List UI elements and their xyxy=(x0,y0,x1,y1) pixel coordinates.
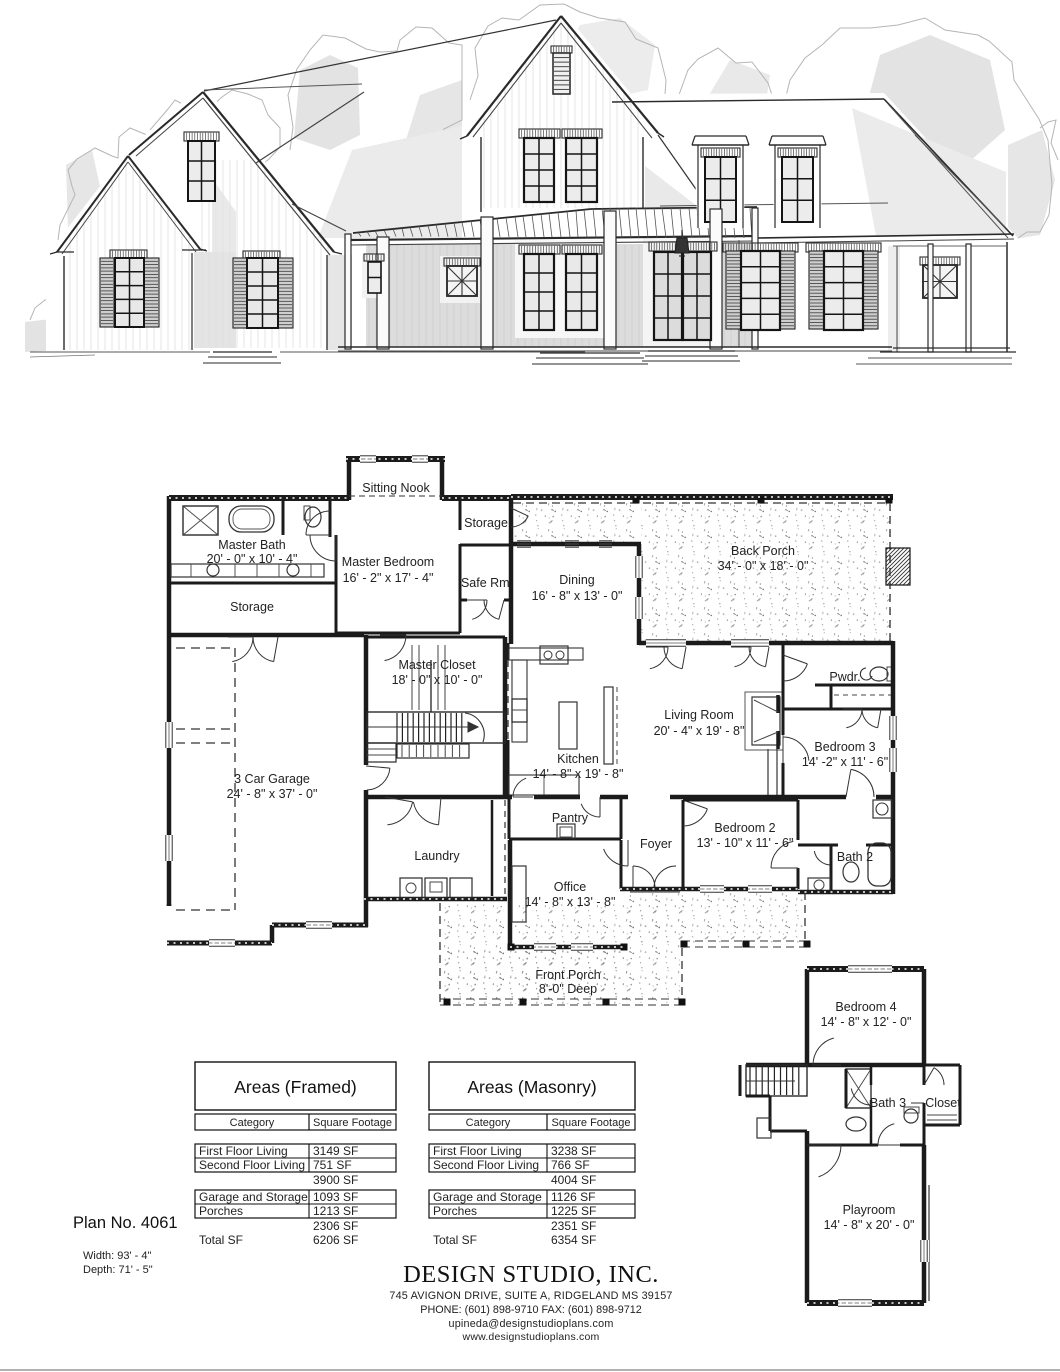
svg-text:Areas (Framed): Areas (Framed) xyxy=(234,1077,357,1097)
svg-text:766 SF: 766 SF xyxy=(551,1158,590,1172)
svg-text:1126 SF: 1126 SF xyxy=(551,1190,595,1204)
svg-text:Plan No. 4061: Plan No. 4061 xyxy=(73,1214,178,1232)
svg-text:Category: Category xyxy=(466,1117,511,1129)
svg-text:14' -2" x 11' - 6": 14' -2" x 11' - 6" xyxy=(802,755,888,769)
svg-text:Total SF: Total SF xyxy=(433,1233,477,1247)
svg-text:www.designstudioplans.com: www.designstudioplans.com xyxy=(462,1331,600,1343)
svg-text:4004 SF: 4004 SF xyxy=(551,1173,596,1187)
svg-text:Foyer: Foyer xyxy=(640,837,672,851)
svg-text:Closet: Closet xyxy=(925,1096,961,1110)
svg-text:20' - 0" x 10' - 4": 20' - 0" x 10' - 4" xyxy=(207,552,298,566)
svg-text:18' - 0" x 10' - 0": 18' - 0" x 10' - 0" xyxy=(392,673,483,687)
svg-text:13' - 10" x 11' - 6": 13' - 10" x 11' - 6" xyxy=(697,836,794,850)
svg-text:24' - 8" x 37' - 0": 24' - 8" x 37' - 0" xyxy=(227,787,318,801)
svg-text:Safe Rm.: Safe Rm. xyxy=(461,576,513,590)
svg-text:upineda@designstudioplans.com: upineda@designstudioplans.com xyxy=(448,1318,613,1330)
svg-text:6354 SF: 6354 SF xyxy=(551,1233,596,1247)
svg-text:3 Car Garage: 3 Car Garage xyxy=(234,772,310,786)
svg-text:1225 SF: 1225 SF xyxy=(551,1204,596,1218)
svg-text:Bedroom 4: Bedroom 4 xyxy=(835,1000,896,1014)
svg-text:745 AVIGNON DRIVE, SUITE A, RI: 745 AVIGNON DRIVE, SUITE A, RIDGELAND MS… xyxy=(389,1290,672,1302)
svg-text:Bath 2: Bath 2 xyxy=(837,850,873,864)
svg-text:Porches: Porches xyxy=(199,1204,243,1218)
svg-text:Laundry: Laundry xyxy=(414,849,460,863)
svg-text:Storage: Storage xyxy=(230,600,274,614)
svg-text:DESIGN STUDIO, INC.: DESIGN STUDIO, INC. xyxy=(403,1261,659,1288)
svg-text:Garage and Storage: Garage and Storage xyxy=(433,1190,542,1204)
svg-text:3149 SF: 3149 SF xyxy=(313,1144,358,1158)
svg-text:14' - 8" x 13' - 8": 14' - 8" x 13' - 8" xyxy=(525,895,616,909)
svg-text:16' - 2" x 17' - 4": 16' - 2" x 17' - 4" xyxy=(343,571,434,585)
svg-text:Master Closet: Master Closet xyxy=(398,658,476,672)
svg-text:3900 SF: 3900 SF xyxy=(313,1173,358,1187)
svg-text:Pantry: Pantry xyxy=(552,811,589,825)
svg-text:Kitchen: Kitchen xyxy=(557,752,599,766)
svg-text:751 SF: 751 SF xyxy=(313,1158,352,1172)
svg-text:Bedroom 3: Bedroom 3 xyxy=(814,740,875,754)
svg-text:Total SF: Total SF xyxy=(199,1233,243,1247)
svg-text:Storage: Storage xyxy=(464,516,508,530)
svg-text:Master Bedroom: Master Bedroom xyxy=(342,555,434,569)
svg-text:Office: Office xyxy=(554,880,586,894)
svg-text:14' - 8" x 20' - 0": 14' - 8" x 20' - 0" xyxy=(824,1218,915,1232)
svg-text:1213 SF: 1213 SF xyxy=(313,1204,358,1218)
svg-text:Back Porch: Back Porch xyxy=(731,544,795,558)
svg-text:20' - 4" x 19' - 8": 20' - 4" x 19' - 8" xyxy=(654,724,745,738)
svg-text:14' - 8" x 12' - 0": 14' - 8" x 12' - 0" xyxy=(821,1015,912,1029)
svg-text:1093 SF: 1093 SF xyxy=(313,1190,358,1204)
svg-text:Dining: Dining xyxy=(559,573,594,587)
svg-text:Second Floor Living: Second Floor Living xyxy=(433,1158,539,1172)
svg-text:8'-0" Deep: 8'-0" Deep xyxy=(539,982,597,996)
svg-text:First Floor Living: First Floor Living xyxy=(433,1144,522,1158)
svg-text:3238 SF: 3238 SF xyxy=(551,1144,596,1158)
svg-text:2351 SF: 2351 SF xyxy=(551,1219,596,1233)
svg-text:First Floor Living: First Floor Living xyxy=(199,1144,288,1158)
svg-text:2306 SF: 2306 SF xyxy=(313,1219,358,1233)
svg-text:Width: 93' - 4": Width: 93' - 4" xyxy=(83,1250,151,1262)
svg-text:Bedroom 2: Bedroom 2 xyxy=(714,821,775,835)
svg-text:Master Bath: Master Bath xyxy=(218,538,285,552)
svg-text:Playroom: Playroom xyxy=(843,1203,896,1217)
svg-text:Second Floor Living: Second Floor Living xyxy=(199,1158,305,1172)
svg-text:PHONE: (601) 898-9710 FAX: (6: PHONE: (601) 898-9710 FAX: (601) 898-971… xyxy=(420,1304,641,1316)
svg-text:Pwdr.: Pwdr. xyxy=(829,670,860,684)
svg-text:Square Footage: Square Footage xyxy=(313,1117,392,1129)
svg-text:Category: Category xyxy=(230,1117,275,1129)
svg-text:Living Room: Living Room xyxy=(664,708,733,722)
svg-text:Depth: 71' - 5": Depth: 71' - 5" xyxy=(83,1264,153,1276)
svg-text:Bath 3: Bath 3 xyxy=(870,1096,906,1110)
svg-text:34' - 0" x 18' - 0": 34' - 0" x 18' - 0" xyxy=(718,559,809,573)
svg-text:Sitting Nook: Sitting Nook xyxy=(362,481,430,495)
svg-text:16' - 8" x 13' - 0": 16' - 8" x 13' - 0" xyxy=(532,589,623,603)
svg-text:6206 SF: 6206 SF xyxy=(313,1233,358,1247)
svg-text:Square Footage: Square Footage xyxy=(552,1117,631,1129)
svg-text:14' - 8" x 19' - 8": 14' - 8" x 19' - 8" xyxy=(533,767,624,781)
svg-text:Front Porch: Front Porch xyxy=(535,968,600,982)
svg-text:Porches: Porches xyxy=(433,1204,477,1218)
svg-text:Areas (Masonry): Areas (Masonry) xyxy=(467,1077,596,1097)
svg-text:Garage and Storage: Garage and Storage xyxy=(199,1190,308,1204)
